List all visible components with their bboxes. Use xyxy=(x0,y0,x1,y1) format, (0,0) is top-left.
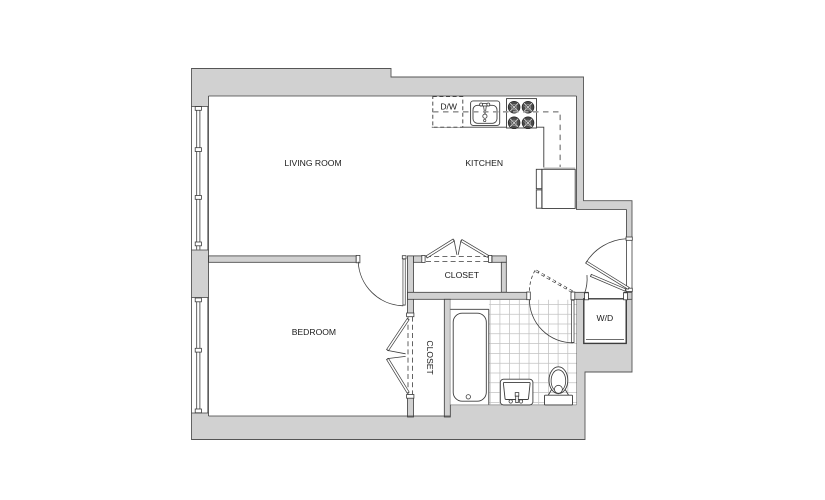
svg-text:BEDROOM: BEDROOM xyxy=(292,327,336,337)
svg-text:CLOSET: CLOSET xyxy=(425,340,435,375)
svg-text:KITCHEN: KITCHEN xyxy=(465,158,503,168)
svg-text:LIVING ROOM: LIVING ROOM xyxy=(284,158,341,168)
svg-text:W/D: W/D xyxy=(597,313,614,323)
svg-text:CLOSET: CLOSET xyxy=(445,270,480,280)
svg-text:D/W: D/W xyxy=(440,102,458,112)
